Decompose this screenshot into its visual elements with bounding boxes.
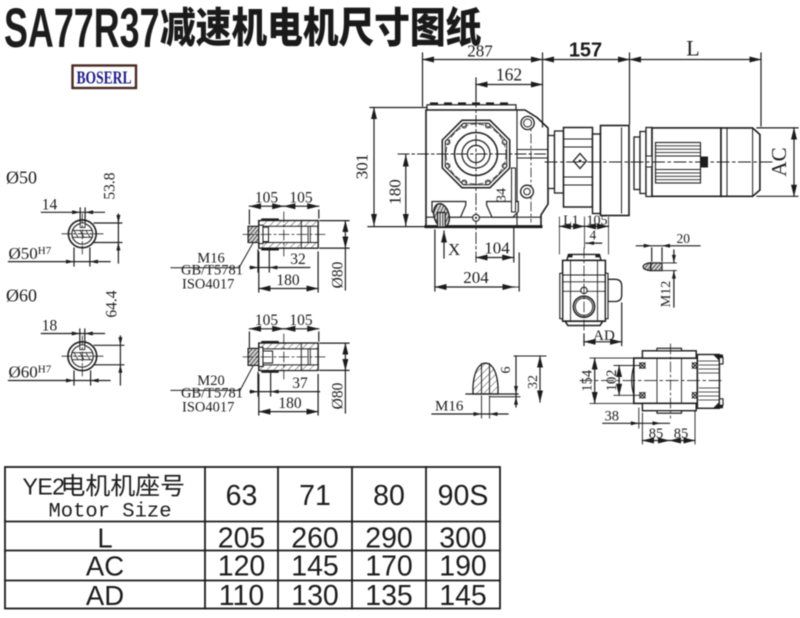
svg-text:53.8: 53.8: [102, 172, 119, 199]
svg-text:YE2: YE2: [23, 474, 65, 500]
svg-text:102: 102: [604, 370, 620, 392]
svg-text:204: 204: [463, 268, 489, 287]
svg-text:Motor Size: Motor Size: [48, 501, 171, 524]
svg-text:110: 110: [219, 580, 264, 612]
svg-text:90S: 90S: [438, 480, 489, 512]
svg-text:ISO4017: ISO4017: [182, 399, 234, 415]
svg-text:105: 105: [587, 214, 608, 229]
svg-text:4: 4: [590, 228, 597, 243]
svg-text:M12: M12: [659, 281, 674, 307]
svg-text:Ø80: Ø80: [330, 261, 347, 288]
svg-text:AC: AC: [86, 551, 124, 582]
svg-text:32: 32: [290, 251, 306, 268]
svg-text:162: 162: [496, 65, 522, 85]
svg-text:M16: M16: [435, 399, 464, 415]
svg-text:105: 105: [289, 190, 313, 207]
svg-text:80: 80: [373, 480, 405, 512]
svg-text:20: 20: [677, 231, 691, 246]
svg-text:AC: AC: [767, 147, 791, 176]
svg-text:L: L: [686, 36, 699, 61]
svg-text:145: 145: [439, 580, 487, 612]
svg-text:34: 34: [495, 188, 510, 202]
svg-text:63: 63: [226, 480, 258, 512]
svg-text:32: 32: [526, 375, 541, 389]
svg-text:14: 14: [42, 197, 58, 214]
svg-text:180: 180: [278, 395, 302, 412]
svg-text:SA77R37: SA77R37: [4, 0, 160, 59]
svg-text:6: 6: [499, 367, 514, 374]
svg-text:154: 154: [580, 369, 596, 392]
svg-text:18: 18: [42, 318, 58, 335]
svg-text:Ø80: Ø80: [330, 382, 347, 409]
svg-text:BOSERL: BOSERL: [77, 68, 132, 88]
svg-text:X: X: [448, 240, 460, 259]
svg-text:170: 170: [365, 551, 413, 583]
svg-text:38: 38: [604, 409, 619, 425]
svg-text:Ø50: Ø50: [6, 168, 37, 188]
svg-text:ISO4017: ISO4017: [182, 277, 234, 293]
svg-text:130: 130: [291, 580, 339, 612]
svg-text:145: 145: [291, 551, 339, 583]
svg-text:190: 190: [439, 551, 487, 583]
svg-text:104: 104: [484, 239, 510, 258]
svg-text:105: 105: [255, 190, 279, 207]
svg-text:85: 85: [649, 426, 664, 442]
svg-text:37: 37: [292, 375, 308, 392]
svg-text:105: 105: [255, 312, 279, 329]
svg-text:135: 135: [365, 580, 413, 612]
svg-text:287: 287: [467, 42, 493, 61]
svg-text:AD: AD: [593, 328, 615, 344]
svg-text:71: 71: [299, 480, 331, 512]
svg-text:180: 180: [276, 272, 300, 289]
svg-text:85: 85: [674, 426, 689, 442]
svg-text:L: L: [97, 523, 112, 554]
svg-text:105: 105: [289, 312, 313, 329]
svg-text:157: 157: [569, 40, 602, 62]
svg-text:AD: AD: [86, 580, 124, 611]
svg-text:64.4: 64.4: [104, 290, 121, 317]
svg-text:301: 301: [353, 154, 372, 180]
svg-text:Ø60: Ø60: [6, 286, 37, 306]
svg-text:180: 180: [386, 179, 405, 205]
svg-text:L1: L1: [563, 214, 579, 229]
svg-text:120: 120: [218, 551, 266, 583]
